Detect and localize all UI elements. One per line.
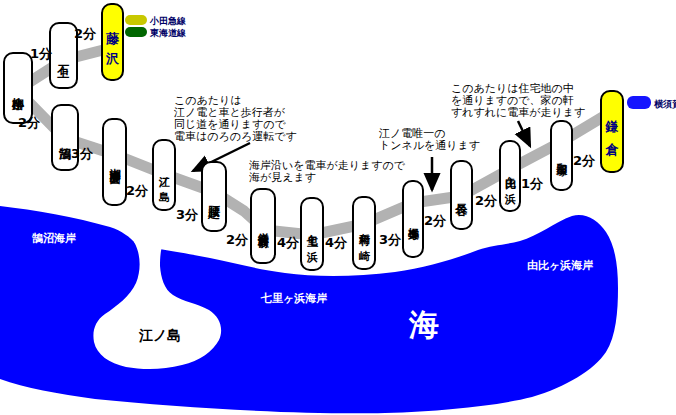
station-label: 鵠沼 — [59, 137, 71, 139]
odakyu-line-icon — [125, 15, 147, 25]
station-label: 由比ヶ浜 — [505, 168, 516, 185]
station-gokurakuji: 極楽寺 — [402, 180, 424, 258]
station-label: 鎌倉 — [606, 110, 619, 154]
station-label: 七里ヶ浜 — [307, 226, 318, 243]
yokosuka-line-label: 横須賀線 — [654, 98, 676, 111]
station-label: 極楽寺 — [408, 218, 419, 221]
shichirigahama-beach-label: 七里ヶ浜海岸 — [261, 291, 327, 306]
station-kamakura-kokomae: 鎌倉高校前 — [250, 188, 276, 264]
annotation-line: 電車はのろのろ運転です — [174, 131, 297, 143]
time-hase-yuigahama: 2分 — [475, 192, 497, 210]
station-label: 江ノ島 — [159, 167, 170, 183]
annotation-slow-section: このあたりは 江ノ電と車と歩行者が 同じ道を通りますので 電車はのろのろ運転です — [174, 95, 297, 143]
time-wadazuka-kamakura: 2分 — [573, 152, 595, 170]
station-label: 湘南海岸公園 — [109, 159, 120, 165]
time-shonan-enoshima: 2分 — [126, 182, 148, 200]
annotation-houses: このあたりは住宅地の中 を通りますので、家の軒 すれすれに電車が走ります — [451, 83, 585, 119]
annotation-arrow-houses — [518, 121, 530, 146]
station-label: 稲村ヶ崎 — [359, 225, 370, 242]
enoden-route-map: 柳小路 石上 藤沢 鵠沼 湘南海岸公園 江ノ島 腰越 鎌倉高校前 七里ヶ浜 稲村… — [0, 0, 676, 415]
time-shichiri-inamura: 4分 — [325, 234, 347, 252]
yuigahama-beach-label: 由比ヶ浜海岸 — [527, 258, 593, 273]
station-koshigoe: 腰越 — [201, 161, 227, 232]
tokaido-line-icon — [125, 27, 147, 37]
tokaido-line-label: 東海道線 — [150, 27, 186, 40]
annotation-line: 海が見えます — [249, 172, 405, 184]
time-enoshima-koshigoe: 3分 — [176, 206, 198, 224]
station-fujisawa: 藤沢 — [101, 3, 124, 81]
station-label: 藤沢 — [106, 20, 119, 64]
kugenuma-beach-label: 鵠沼海岸 — [32, 231, 76, 246]
enoshima-island-label: 江ノ島 — [139, 327, 181, 345]
station-wadazuka: 和田塚 — [550, 120, 573, 191]
time-gokuraku-hase: 2分 — [424, 212, 446, 230]
time-kugenuma-shonan: 3分 — [71, 145, 93, 163]
annotation-tunnel: 江ノ電唯一の トンネルを通ります — [379, 128, 480, 152]
yokosuka-line-icon — [627, 96, 651, 109]
station-label: 腰越 — [208, 196, 220, 198]
station-label: 和田塚 — [556, 154, 567, 157]
time-yanagikoji-ishigami: 1分 — [30, 45, 52, 63]
time-yuigahama-wadazuka: 1分 — [521, 175, 543, 193]
station-enoshima: 江ノ島 — [152, 139, 176, 211]
annotation-line: トンネルを通ります — [379, 140, 480, 152]
time-koshigoe-kokomae: 2分 — [226, 231, 248, 249]
station-shichirigahama: 七里ヶ浜 — [300, 197, 324, 271]
station-yuigahama: 由比ヶ浜 — [499, 140, 521, 212]
station-hase: 長谷 — [450, 160, 473, 230]
sea-label: 海 — [409, 305, 439, 346]
station-shonan-kaigan-koen: 湘南海岸公園 — [102, 118, 127, 206]
station-label: 鎌倉高校前 — [258, 224, 269, 229]
annotation-sea-view: 海岸沿いを電車が走りますので 海が見えます — [249, 160, 405, 184]
time-yanagikoji-kugenuma: 2分 — [18, 114, 40, 132]
station-kamakura: 鎌倉 — [600, 90, 624, 173]
time-ishigami-fujisawa: 2分 — [74, 25, 96, 43]
station-label: 長谷 — [456, 194, 468, 196]
time-kokomae-shichiri: 4分 — [277, 234, 299, 252]
time-inamura-gokuraku: 3分 — [379, 231, 401, 249]
station-inamuragasaki: 稲村ヶ崎 — [352, 196, 376, 270]
station-label: 石上 — [58, 55, 70, 57]
station-label: 柳小路 — [12, 87, 24, 90]
annotation-line: すれすれに電車が走ります — [451, 107, 585, 119]
